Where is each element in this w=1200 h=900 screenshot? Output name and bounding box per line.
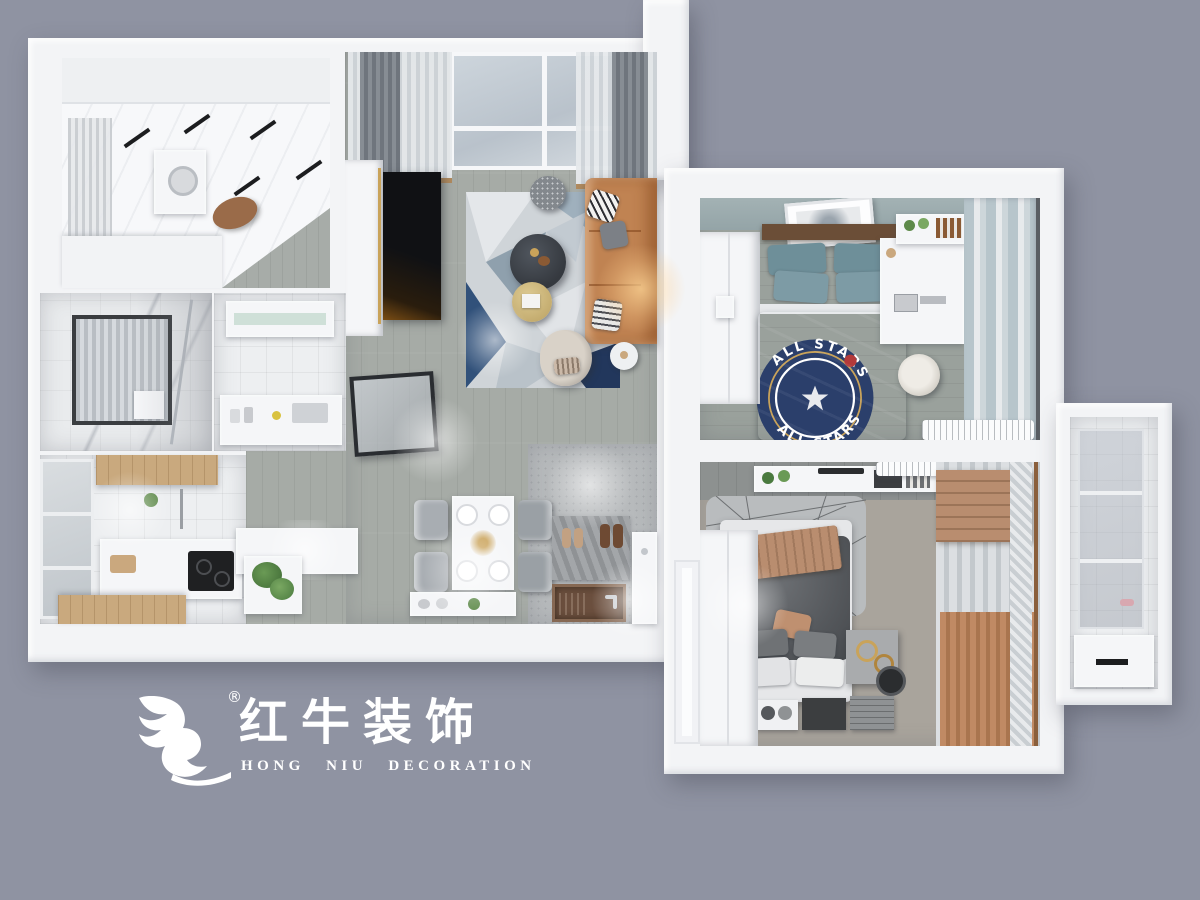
wardrobe-master	[700, 530, 758, 746]
kitchen-counter-west	[100, 539, 242, 599]
cabinet-frosted-glass	[234, 313, 326, 325]
sofa-pillow-check	[591, 298, 623, 332]
wardrobe-seam	[728, 232, 730, 404]
glass-frame-bar	[1080, 559, 1142, 563]
laptop	[894, 294, 918, 312]
plate	[488, 560, 510, 582]
curtain-rod	[1036, 198, 1040, 440]
balcony-shower-floor	[1070, 417, 1158, 689]
entry-door-leaf	[674, 560, 700, 744]
kitchen-sink	[552, 584, 626, 622]
shelf-tablet	[818, 468, 864, 474]
curtain-left-gray	[360, 52, 400, 176]
flower-centerpiece	[470, 530, 496, 556]
sink-drain-grooves	[559, 593, 589, 615]
pillow-white	[795, 657, 844, 687]
dining-table	[452, 496, 514, 590]
shoe-cabinet	[632, 532, 657, 624]
tv-gold-trim	[378, 168, 381, 324]
shower-glass-screen	[1078, 429, 1144, 629]
plate	[488, 504, 510, 526]
side-table-gold	[512, 282, 552, 322]
drain-slot	[1096, 659, 1128, 665]
shoes-brown	[613, 524, 623, 548]
bedroom-master-floor	[700, 462, 1040, 746]
window-mullion	[43, 512, 91, 516]
shelf-plant	[762, 472, 774, 484]
shower-step-tub	[1074, 635, 1154, 687]
watermark-logo: ® 红牛装饰 HONG NIU DECORATION	[135, 688, 475, 798]
slippers-tan	[562, 528, 571, 548]
bull-swoosh-icon	[135, 696, 235, 788]
bedroom-teal-floor: ALL STARS ALL STARS	[700, 198, 1040, 440]
desk	[880, 238, 964, 344]
table-decor-plant	[538, 256, 550, 266]
pillow-teal	[773, 270, 829, 304]
faucet	[613, 595, 617, 609]
utility-upper-wall	[62, 58, 330, 104]
armchair-beige	[540, 330, 592, 386]
washer-cabinet	[154, 150, 206, 214]
coffee-table-dark	[510, 234, 566, 290]
armchair-pillow-striped	[553, 357, 581, 376]
burner	[214, 571, 230, 587]
kitchen-counter-north	[220, 395, 342, 445]
toiletry-pink	[1120, 599, 1134, 606]
condiment-jars	[244, 407, 253, 423]
chevron-sheer-strip	[1010, 462, 1032, 746]
print-circle	[761, 706, 775, 720]
books-stack	[936, 218, 962, 238]
knit-pouf	[530, 176, 566, 210]
window-mullion	[542, 56, 547, 166]
desk-lamp	[886, 248, 896, 258]
dish	[418, 599, 430, 609]
herb-plant	[144, 493, 158, 507]
floor-print-gray	[850, 696, 894, 730]
desk-shelf	[896, 214, 968, 244]
lemon-yellow-item	[272, 411, 281, 420]
kitchen-bench-wood	[58, 595, 186, 624]
bathroom-floor	[40, 293, 212, 451]
shelf-plant	[918, 218, 929, 229]
kitchen-north-wall	[214, 293, 346, 451]
kitchen-wall-cabinet	[226, 301, 334, 337]
plate	[456, 504, 478, 526]
speaker-round	[876, 666, 906, 696]
sofa-pillow-patterned	[585, 188, 620, 223]
green-bowl	[468, 598, 480, 610]
dining-sideboard	[410, 592, 516, 616]
book-on-table	[522, 294, 540, 308]
desk-chair	[898, 354, 940, 396]
wardrobe-teal-room	[700, 232, 760, 404]
brand-name-cn: 红牛装饰	[239, 698, 487, 747]
floorplan-render: ALL STARS ALL STARS	[0, 0, 1200, 900]
condiment-jars	[230, 409, 240, 423]
cutting-board	[110, 555, 136, 573]
dining-chair	[518, 552, 552, 592]
cabinet-knob	[641, 548, 648, 555]
floor-print-dark	[802, 698, 846, 730]
shelf-plant	[778, 470, 790, 482]
shelf-plant	[904, 220, 915, 231]
glass-partition	[349, 371, 438, 457]
cup-on-table	[620, 351, 628, 359]
dining-chair	[518, 500, 552, 540]
utensil-rail	[180, 489, 183, 529]
wardrobe-seam	[727, 530, 729, 746]
upper-cabinets-wood	[96, 455, 218, 485]
curtain-right-gray	[612, 52, 648, 182]
shoes-brown	[600, 524, 610, 548]
bathroom-shadow	[136, 293, 212, 451]
tv-screen	[383, 172, 441, 320]
dining-chair	[414, 500, 448, 540]
nightstand-small	[716, 296, 734, 318]
spice-rack	[292, 403, 328, 423]
planter-box	[244, 556, 302, 614]
sofa-seat-seam	[589, 284, 641, 286]
curtain-band-east	[936, 462, 1040, 746]
pillow-gray	[793, 630, 837, 660]
curtain-rod-copper	[1034, 462, 1038, 746]
utility-parapet	[62, 236, 222, 288]
ac-unit	[922, 420, 1034, 440]
curtains-chevron	[964, 198, 1040, 440]
table-decor-gold	[530, 248, 539, 257]
print-circle	[778, 706, 792, 720]
slippers-tan	[574, 528, 583, 548]
window-mullion	[43, 566, 91, 570]
plate	[456, 560, 478, 582]
keyboard	[920, 296, 946, 304]
dining-chair	[414, 552, 448, 592]
green-plant	[270, 578, 294, 600]
utility-room-floor	[62, 58, 330, 288]
kitchen-west-floor	[40, 455, 246, 624]
dish	[436, 598, 448, 609]
cooktop	[188, 551, 234, 591]
floor-print-white	[756, 700, 798, 730]
brand-name-en: HONG NIU DECORATION	[241, 758, 536, 775]
glass-frame-bar	[1080, 491, 1142, 495]
sofa-tan	[585, 178, 657, 344]
washer-door	[168, 166, 198, 196]
side-table-white	[610, 342, 638, 370]
burner	[196, 559, 212, 575]
sofa-pillow-gray	[599, 220, 629, 250]
